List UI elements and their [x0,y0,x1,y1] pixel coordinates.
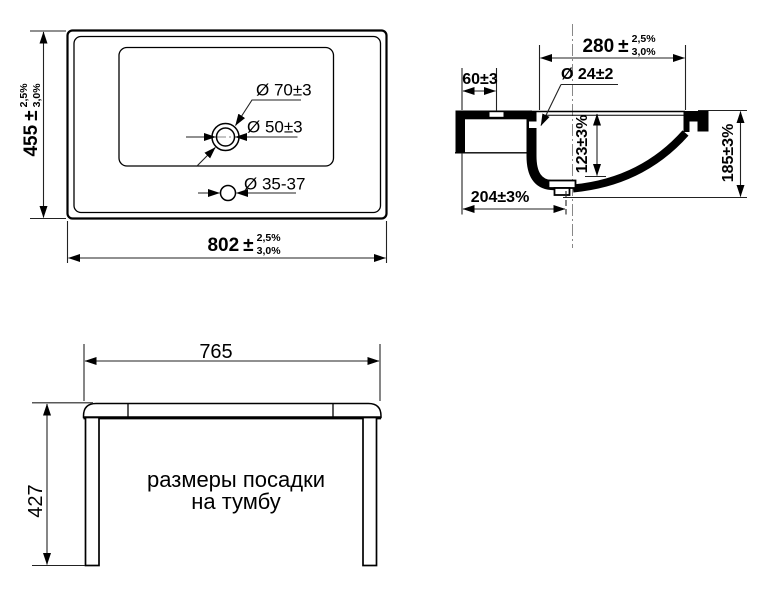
dim-rim-width-280: 280±2,5%3,0% [582,33,655,59]
label-drain-outer-diameter: Ø 70±3 [256,82,312,99]
label-drain-inner-diameter: Ø 50±3 [247,119,303,136]
sink-outer-edge [68,31,387,219]
bowl-recess-edge [119,48,334,167]
washbasin-technical-drawing: 455±2,5%3,0% 802±2,5%3,0% Ø 70±3 Ø 50±3 … [0,0,768,600]
faucet-hole [221,186,236,201]
mounting-caption-line2: на тумбу [191,491,281,513]
dim-mounting-width-765: 765 [199,342,232,362]
drain-outlet-section [555,188,570,195]
skirt-leg-right [363,418,377,566]
back-rim-hook-section [684,111,709,132]
skirt-leg-left [86,418,100,566]
mounting-caption-line1: размеры посадки [147,469,325,491]
dim-value: 802 [207,236,239,255]
dim-front-overhang-204: 204±3% [471,190,530,206]
dim-total-height-185: 185±3% [721,124,737,183]
drawing-linework [0,0,768,600]
dim-bowl-depth-123: 123±3% [575,115,591,174]
label-overflow-hole-diameter: Ø 24±2 [561,67,613,83]
dim-value: 280 [582,37,614,56]
drain-flange-section [549,181,576,189]
overflow-hole-slot [529,122,537,129]
dim-width-802: 802±2,5%3,0% [207,232,280,258]
dim-height-455: 455±2,5%3,0% [18,83,44,156]
dim-value: 455 [22,125,41,157]
plus-minus-sign: ± [618,37,628,56]
top-view-sink-outline [68,31,387,219]
dim-mounting-height-427: 427 [26,484,46,517]
dim-front-ledge-60: 60±3 [462,72,497,88]
label-faucet-hole-diameter: Ø 35-37 [244,176,305,193]
plus-minus-sign: ± [243,236,253,255]
plus-minus-sign: ± [22,110,41,120]
ledge-joint-slot [490,112,504,117]
